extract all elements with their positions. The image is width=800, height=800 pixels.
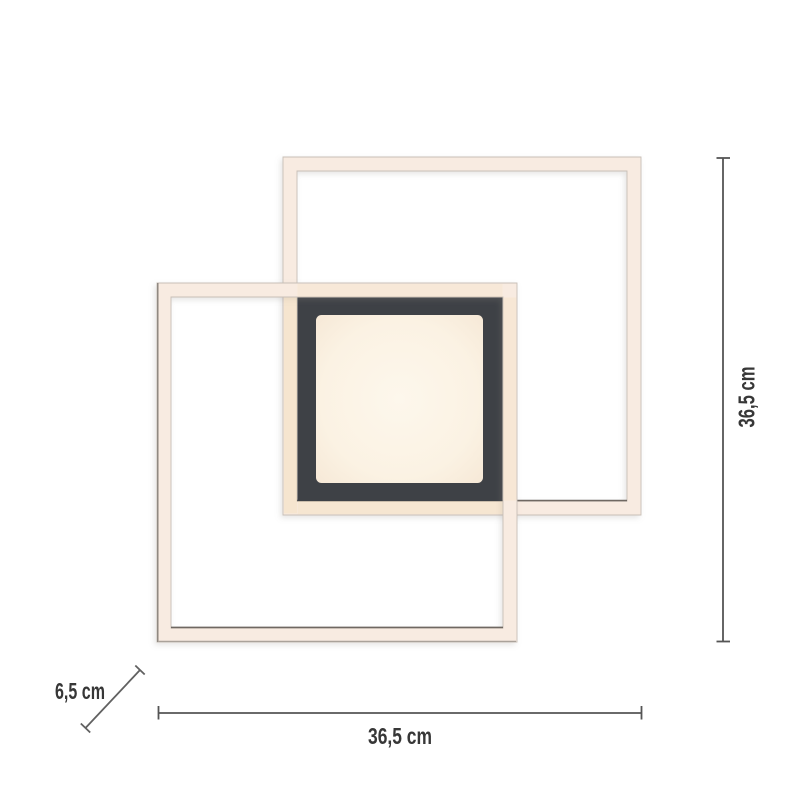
svg-text:36,5 cm: 36,5 cm [734, 367, 760, 428]
svg-text:6,5 cm: 6,5 cm [55, 678, 105, 704]
svg-text:36,5 cm: 36,5 cm [368, 723, 432, 749]
